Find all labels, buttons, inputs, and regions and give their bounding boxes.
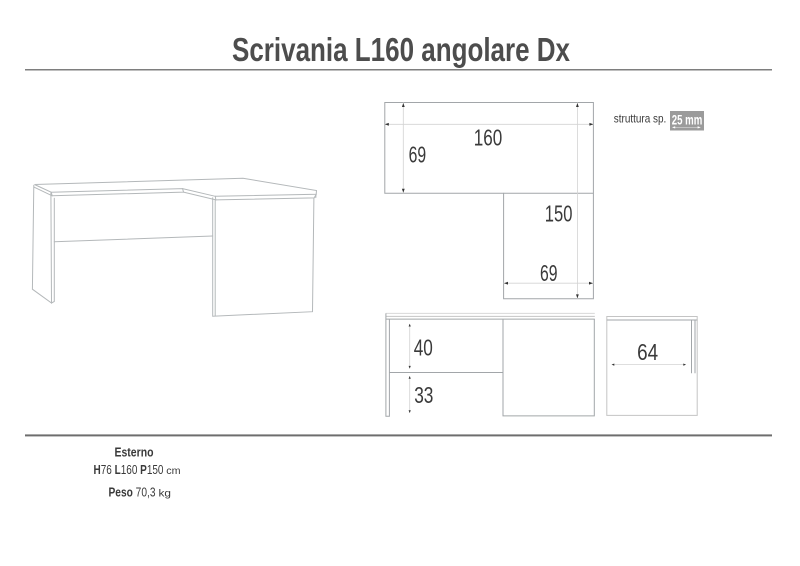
svg-text:cm: cm: [166, 465, 181, 477]
svg-text:struttura sp.: struttura sp.: [614, 111, 667, 125]
svg-text:Esterno: Esterno: [115, 446, 154, 460]
svg-text:Peso 70,3: Peso 70,3: [109, 484, 156, 499]
svg-text:25 mm: 25 mm: [672, 111, 703, 127]
svg-text:40: 40: [414, 334, 433, 360]
svg-text:69: 69: [409, 142, 427, 168]
svg-text:H76 L160 P150: H76 L160 P150: [94, 462, 164, 477]
svg-text:69: 69: [540, 260, 558, 286]
svg-text:150: 150: [545, 201, 573, 227]
svg-text:Scrivania L160 angolare Dx: Scrivania L160 angolare Dx: [232, 31, 571, 68]
svg-text:33: 33: [414, 382, 433, 408]
svg-text:64: 64: [637, 339, 658, 365]
svg-text:160: 160: [474, 124, 503, 150]
svg-text:kg: kg: [159, 487, 172, 499]
